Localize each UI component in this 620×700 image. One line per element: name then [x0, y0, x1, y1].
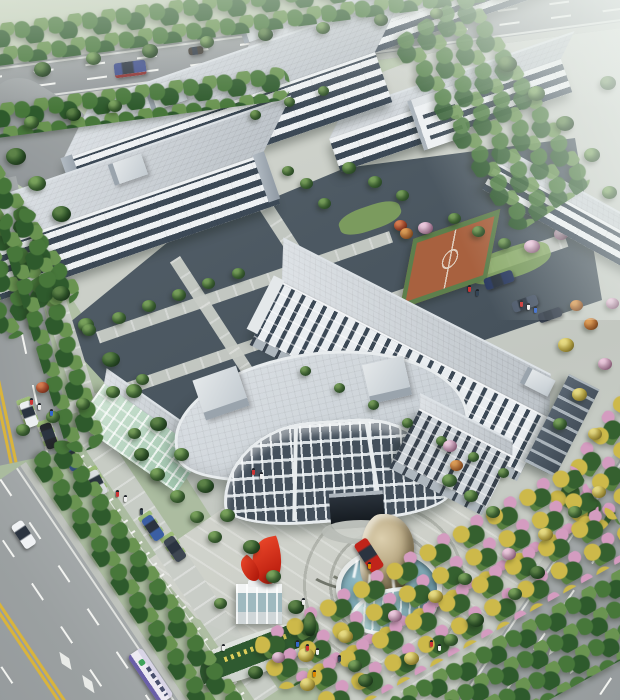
pedestrian — [252, 468, 255, 475]
tree — [34, 62, 51, 77]
tree — [142, 300, 156, 312]
tree — [52, 286, 70, 301]
tree — [46, 411, 60, 423]
tree — [402, 418, 413, 428]
tree — [128, 428, 141, 439]
tree — [28, 176, 46, 191]
pedestrian — [316, 648, 319, 655]
conifer-tree — [304, 612, 316, 636]
tree — [208, 531, 222, 543]
cherry-tree — [524, 240, 540, 253]
tree — [318, 86, 329, 96]
tree — [464, 490, 478, 502]
tree — [498, 56, 517, 72]
tree — [136, 374, 149, 385]
tree — [250, 110, 261, 120]
tree — [282, 166, 294, 176]
tree — [358, 674, 373, 687]
tree — [174, 448, 189, 461]
tree — [458, 573, 472, 585]
tree — [318, 198, 331, 209]
tree — [16, 424, 30, 436]
tree — [498, 238, 511, 249]
pedestrian — [50, 409, 53, 416]
tree — [602, 186, 617, 199]
ginkgo-tree — [588, 428, 602, 440]
ginkgo-tree — [572, 388, 587, 401]
tree — [232, 268, 245, 279]
tree — [508, 588, 522, 600]
car — [188, 46, 204, 56]
pedestrian — [30, 398, 33, 405]
white-car — [11, 519, 37, 549]
pedestrian — [124, 495, 127, 502]
tree — [486, 506, 500, 518]
diamond-marking — [56, 649, 76, 672]
tree — [200, 36, 214, 48]
tree — [266, 570, 281, 583]
orange-tree — [400, 228, 413, 239]
red-maple-tree — [36, 382, 49, 393]
bus-logo — [138, 658, 146, 666]
cherry-tree — [606, 298, 619, 309]
tree — [334, 383, 345, 393]
tree — [553, 418, 567, 430]
pedestrian — [534, 306, 537, 313]
pedestrian — [476, 289, 479, 296]
tree — [342, 162, 356, 174]
ginkgo-tree — [428, 590, 443, 603]
tree — [214, 598, 227, 609]
facade-mullion — [292, 427, 298, 521]
cherry-tree — [443, 440, 457, 452]
ginkgo-tree — [300, 678, 315, 691]
tree — [468, 613, 484, 627]
tree — [584, 148, 600, 162]
pedestrian — [368, 562, 371, 569]
ginkgo-tree — [404, 652, 419, 665]
tree — [498, 468, 509, 478]
pedestrian — [116, 490, 119, 497]
orange-tree — [584, 318, 598, 330]
tree — [348, 660, 362, 672]
pedestrian — [520, 300, 523, 307]
tree — [190, 511, 204, 523]
tree — [6, 148, 26, 165]
tree — [530, 566, 545, 579]
tree — [24, 116, 39, 129]
pedestrian — [306, 644, 309, 651]
tree — [86, 52, 101, 65]
tree — [368, 176, 382, 188]
tree — [76, 398, 90, 410]
ginkgo-tree — [538, 528, 553, 541]
tree — [106, 386, 120, 398]
pedestrian — [222, 644, 225, 651]
tree — [142, 44, 158, 58]
campus-aerial-rendering: Aerial rendering of a campus industrial … — [0, 0, 620, 700]
tree — [150, 468, 165, 481]
tree — [170, 490, 185, 503]
pedestrian — [302, 598, 305, 605]
tree — [82, 324, 96, 336]
tree — [528, 86, 545, 101]
cherry-tree — [502, 548, 516, 560]
tree — [442, 474, 457, 487]
tree — [444, 634, 458, 646]
guard-booth — [236, 584, 282, 624]
ginkgo-tree — [558, 338, 574, 352]
tree — [126, 384, 142, 398]
cherry-tree — [418, 222, 433, 234]
tree — [243, 540, 260, 554]
tree — [197, 479, 214, 493]
tree — [568, 506, 582, 518]
tree — [430, 8, 443, 19]
tree — [600, 76, 616, 90]
tree — [468, 452, 479, 462]
ginkgo-tree — [338, 630, 353, 643]
tree — [102, 352, 120, 367]
tree — [220, 509, 235, 522]
tree — [300, 178, 313, 189]
tree — [316, 22, 330, 34]
tree — [300, 366, 311, 376]
tree — [112, 312, 126, 324]
tree — [248, 666, 263, 679]
pedestrian — [296, 640, 299, 647]
tree — [374, 14, 388, 26]
tree — [134, 448, 149, 461]
tree — [448, 213, 461, 224]
tree — [556, 116, 574, 131]
pedestrian — [430, 640, 433, 647]
pedestrian — [438, 644, 441, 651]
tree — [284, 97, 295, 107]
pedestrian — [260, 472, 263, 479]
bus — [113, 59, 147, 78]
tree — [202, 278, 215, 289]
tree — [396, 190, 409, 201]
orange-tree — [570, 300, 583, 311]
cherry-tree — [388, 610, 402, 622]
tree — [108, 100, 122, 112]
orange-tree — [450, 460, 463, 471]
pedestrian — [313, 670, 316, 677]
tree — [66, 108, 81, 121]
pedestrian — [468, 285, 471, 292]
tree — [150, 417, 167, 431]
cherry-tree — [272, 652, 285, 663]
tree — [368, 400, 379, 410]
pedestrian — [38, 403, 41, 410]
tree — [172, 289, 186, 301]
tree — [52, 206, 71, 222]
pedestrian — [527, 303, 530, 310]
pedestrian — [338, 655, 341, 662]
tree — [472, 226, 485, 237]
tree — [258, 28, 273, 41]
cherry-tree — [598, 358, 612, 370]
ginkgo-tree — [592, 486, 606, 498]
pedestrian — [140, 508, 143, 515]
